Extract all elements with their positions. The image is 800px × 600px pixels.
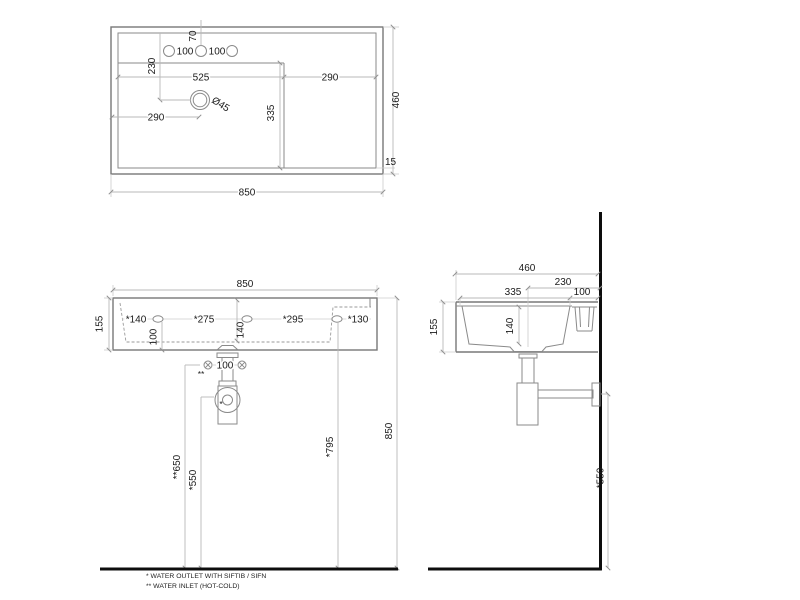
trap-collar xyxy=(219,381,236,386)
footnote-water-outlet: * WATER OUTLET WITH SIFTIB / SIFN xyxy=(146,573,266,580)
footnotes: * WATER OUTLET WITH SIFTIB / SIFN ** WAT… xyxy=(146,573,266,590)
outlet-hole-1-icon xyxy=(153,316,163,322)
dim-drain-offset-x: 290 xyxy=(148,113,165,124)
dim-overflow-height: 100 xyxy=(149,328,160,345)
dim-outlet-height: *795 xyxy=(325,436,336,457)
dim-width-total-front: 850 xyxy=(237,279,254,290)
side-waste-pipe xyxy=(538,390,593,398)
dim-inner-depth-front: 140 xyxy=(236,321,247,338)
faucet-hole-icons xyxy=(164,46,238,57)
dim-deck-width: 290 xyxy=(322,73,339,84)
dim-hole-gap-right: 100 xyxy=(209,47,226,58)
top-view-outer-outline xyxy=(111,27,383,174)
side-trap-body xyxy=(517,383,538,425)
trap-flange xyxy=(217,353,238,358)
dim-rim-lip: 15 xyxy=(385,157,397,168)
dim-drain-offset-y: 230 xyxy=(147,57,158,74)
side-trap-tailpipe xyxy=(522,358,534,383)
dim-drain-to-wall: 230 xyxy=(555,277,572,288)
front-trap-assembly xyxy=(215,346,240,425)
dim-drain-diameter: Ø45 xyxy=(209,95,231,115)
technical-drawing-page: 525 290 100 100 70 230 290 Ø45 335 460 1… xyxy=(0,0,800,600)
dim-back-ledge: 100 xyxy=(574,287,591,298)
side-view: 460 230 335 100 155 140 *550 xyxy=(428,212,608,570)
dim-basin-width: 525 xyxy=(193,73,210,84)
top-view-rim-outline xyxy=(118,33,376,168)
trap-cap-icon xyxy=(223,395,233,405)
side-faucet-hole-section xyxy=(572,307,597,331)
faucet-hole-center-icon xyxy=(196,46,207,57)
dim-height-body: 155 xyxy=(95,315,106,332)
dim-rim-height: 850 xyxy=(384,422,395,439)
drain-hole-icon xyxy=(191,91,210,110)
dim-inlet-height: **650 xyxy=(172,454,183,479)
dim-inlet-gap: 100 xyxy=(217,361,234,372)
dim-trap-height: *550 xyxy=(188,469,199,490)
dim-height-body-side: 155 xyxy=(429,318,440,335)
inlet-mark: ** xyxy=(198,369,205,379)
dim-wall-outlet-height: *550 xyxy=(596,467,607,488)
washbasin-dimension-drawing: 525 290 100 100 70 230 290 Ø45 335 460 1… xyxy=(0,0,800,600)
outlet-hole-3-icon xyxy=(332,316,342,322)
faucet-hole-left-icon xyxy=(164,46,175,57)
top-view: 525 290 100 100 70 230 290 Ø45 335 460 1… xyxy=(111,20,402,199)
dim-hole-gap-left: 100 xyxy=(177,47,194,58)
dim-basin-depth: 335 xyxy=(266,104,277,121)
top-view-dimensions xyxy=(111,20,399,197)
front-view: 850 155 *140 *275 *295 *130 100 140 100 … xyxy=(95,279,399,569)
front-view-dimensions xyxy=(104,285,397,568)
footnote-water-inlet: ** WATER INLET (HOT-COLD) xyxy=(146,583,240,590)
dim-outlet-3: *295 xyxy=(283,315,304,326)
side-trap-flange xyxy=(519,354,537,358)
dim-inner-width-side: 335 xyxy=(505,287,522,298)
dim-width-total-top: 850 xyxy=(239,188,256,199)
side-trap-assembly xyxy=(517,354,600,425)
faucet-hole-right-icon xyxy=(227,46,238,57)
side-basin-section xyxy=(456,302,598,352)
dim-outlet-1: *140 xyxy=(126,315,147,326)
dim-inner-depth-side: 140 xyxy=(505,317,516,334)
dim-hole-edge-offset: 70 xyxy=(188,30,199,42)
outlet-hole-2-icon xyxy=(242,316,252,322)
side-view-dimensions xyxy=(439,270,608,568)
dim-outlet-2: *275 xyxy=(194,315,215,326)
dim-depth-total-side: 460 xyxy=(519,263,536,274)
dim-outlet-4: *130 xyxy=(348,315,369,326)
dim-depth-total: 460 xyxy=(391,91,402,108)
